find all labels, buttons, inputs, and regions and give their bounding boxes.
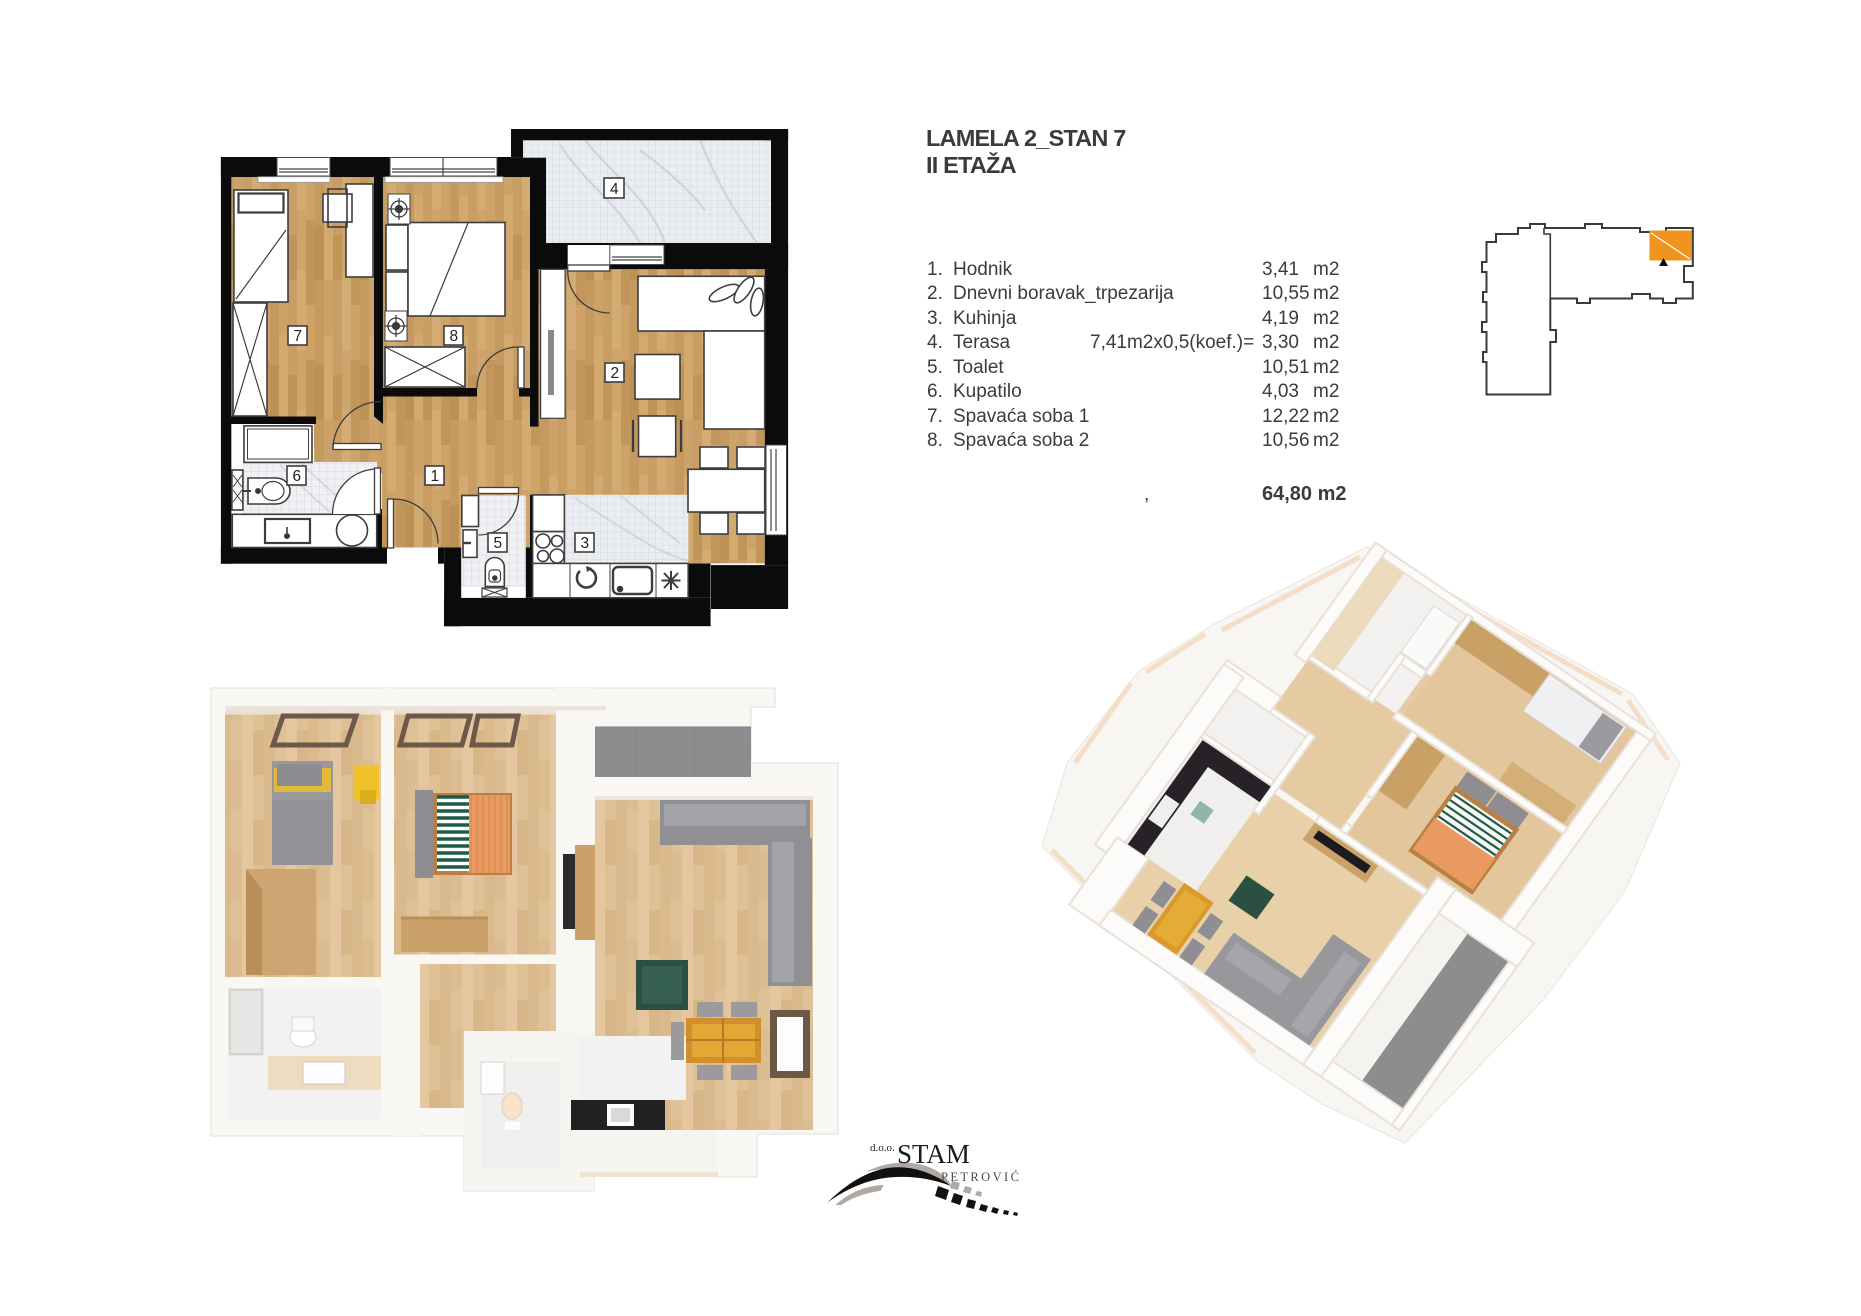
svg-text:1: 1 bbox=[431, 468, 440, 485]
svg-text:Spavaća soba 1: Spavaća soba 1 bbox=[953, 406, 1089, 427]
svg-text:II ETAŽA: II ETAŽA bbox=[926, 151, 1017, 178]
svg-text:d.o.o.: d.o.o. bbox=[870, 1142, 895, 1154]
svg-text:m2: m2 bbox=[1313, 332, 1339, 353]
svg-text:2: 2 bbox=[611, 365, 620, 382]
svg-text:Kuhinja: Kuhinja bbox=[953, 308, 1017, 329]
svg-text:PETROVIĆ: PETROVIĆ bbox=[941, 1170, 1021, 1184]
svg-text:LAMELA 2_STAN 7: LAMELA 2_STAN 7 bbox=[926, 125, 1126, 151]
svg-text:2.: 2. bbox=[927, 283, 943, 304]
svg-text:STAM: STAM bbox=[897, 1139, 970, 1169]
svg-text:8: 8 bbox=[450, 328, 459, 345]
svg-text:1.: 1. bbox=[927, 259, 943, 280]
svg-text:4,19: 4,19 bbox=[1262, 308, 1299, 329]
svg-text:,: , bbox=[1144, 484, 1149, 505]
svg-text:6.: 6. bbox=[927, 381, 943, 402]
svg-text:Terasa: Terasa bbox=[953, 332, 1010, 353]
svg-text:8.: 8. bbox=[927, 430, 943, 451]
svg-text:64,80 m2: 64,80 m2 bbox=[1262, 483, 1347, 505]
svg-text:Toalet: Toalet bbox=[953, 357, 1004, 378]
svg-text:7,41m2x0,5(koef.)=: 7,41m2x0,5(koef.)= bbox=[1090, 332, 1254, 353]
svg-text:3: 3 bbox=[581, 535, 590, 552]
svg-text:5.: 5. bbox=[927, 357, 943, 378]
svg-text:10,56: 10,56 bbox=[1262, 430, 1310, 451]
svg-text:m2: m2 bbox=[1313, 381, 1339, 402]
svg-text:Hodnik: Hodnik bbox=[953, 259, 1013, 280]
svg-text:6: 6 bbox=[293, 468, 302, 485]
svg-text:m2: m2 bbox=[1313, 357, 1339, 378]
svg-text:4: 4 bbox=[610, 181, 619, 198]
svg-text:7: 7 bbox=[294, 328, 303, 345]
svg-text:3.: 3. bbox=[927, 308, 943, 329]
svg-text:m2: m2 bbox=[1313, 308, 1339, 329]
svg-text:3,41: 3,41 bbox=[1262, 259, 1299, 280]
svg-text:m2: m2 bbox=[1313, 430, 1339, 451]
svg-text:4.: 4. bbox=[927, 332, 943, 353]
svg-text:Dnevni boravak_trpezarija: Dnevni boravak_trpezarija bbox=[953, 283, 1174, 304]
svg-text:m2: m2 bbox=[1313, 283, 1339, 304]
svg-text:Kupatilo: Kupatilo bbox=[953, 381, 1022, 402]
svg-text:m2: m2 bbox=[1313, 406, 1339, 427]
svg-text:7.: 7. bbox=[927, 406, 943, 427]
svg-text:3,30: 3,30 bbox=[1262, 332, 1299, 353]
svg-text:4,03: 4,03 bbox=[1262, 381, 1299, 402]
svg-text:5: 5 bbox=[494, 535, 503, 552]
svg-text:10,55: 10,55 bbox=[1262, 283, 1310, 304]
svg-text:12,22: 12,22 bbox=[1262, 406, 1310, 427]
svg-text:10,51: 10,51 bbox=[1262, 357, 1310, 378]
svg-text:Spavaća soba 2: Spavaća soba 2 bbox=[953, 430, 1089, 451]
svg-text:m2: m2 bbox=[1313, 259, 1339, 280]
